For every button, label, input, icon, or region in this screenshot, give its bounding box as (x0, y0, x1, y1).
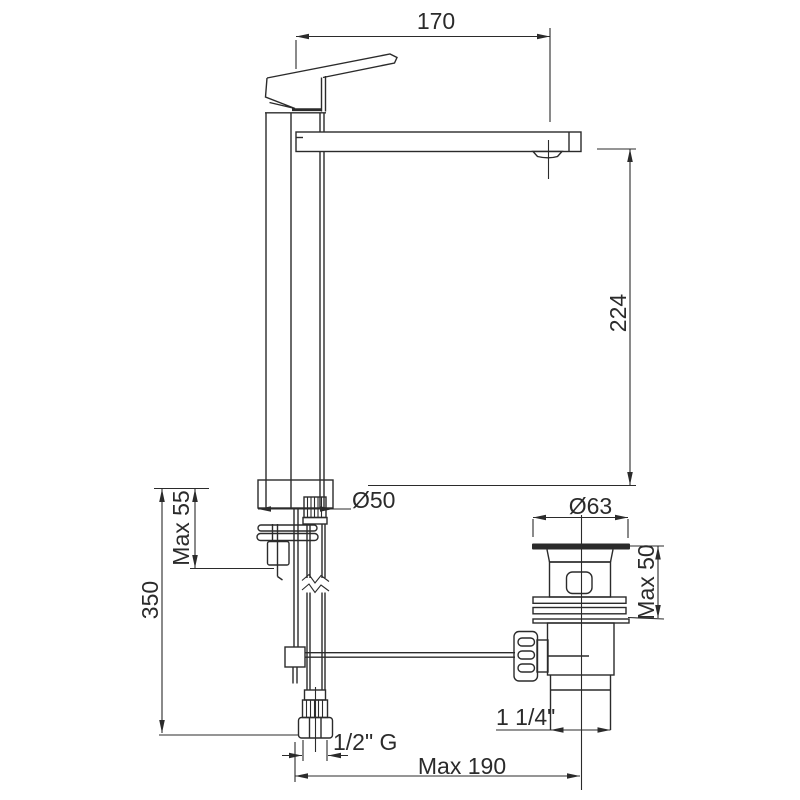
rod-boss (537, 640, 548, 672)
dim-label-waste-flange-diameter: Ø63 (569, 493, 612, 519)
rod-connector (285, 647, 305, 667)
break-symbol (302, 584, 329, 593)
aerator (533, 152, 562, 158)
dim-label-waste-size: 1 1/4" (496, 704, 555, 730)
faucet-handle (266, 54, 398, 112)
waste-body (550, 562, 611, 597)
horseshoe-washer-top (258, 525, 317, 531)
pop-up-rod (285, 508, 515, 684)
dim-spout-height: 224 (368, 149, 636, 486)
dim-label-spout-height: 224 (605, 294, 631, 333)
overflow-hole (567, 572, 593, 594)
dim-waste-size: 1 1/4" (496, 704, 611, 730)
technical-drawing-canvas: 170 224 Ø50 Ø63 Max 55 350 Max 50 (0, 0, 800, 800)
dim-label-waste-max-deck: Max 50 (633, 544, 659, 619)
drain-assembly (514, 515, 630, 790)
faucet-drawing: 170 224 Ø50 Ø63 Max 55 350 Max 50 (0, 0, 800, 800)
dim-waste-max-deck: Max 50 (628, 544, 664, 619)
dim-label-base-diameter: Ø50 (352, 487, 395, 513)
castellated-nut (514, 632, 538, 682)
dim-label-supply-thread: 1/2" G (333, 729, 397, 755)
pull-rod (273, 524, 283, 580)
dim-label-hose-length: 350 (137, 581, 163, 619)
mounting-nut (268, 542, 290, 566)
dim-label-faucet-max-deck: Max 55 (168, 490, 194, 565)
seal-washer-top (533, 597, 626, 603)
waste-flange (532, 544, 630, 550)
supply-hose (299, 524, 333, 752)
horseshoe-washer-bottom (257, 534, 318, 541)
waste-lower-body (548, 623, 615, 675)
dim-supply-thread: 1/2" G (282, 729, 397, 761)
waste-neck (547, 550, 613, 563)
dim-hose-length: 350 (137, 489, 299, 735)
faucet-body (265, 54, 581, 508)
dim-label-center-distance: Max 190 (418, 753, 506, 779)
dim-waste-flange-diameter: Ø63 (533, 493, 628, 538)
dim-base-diameter: Ø50 (258, 487, 395, 513)
seal-washer-bottom (533, 608, 626, 614)
dim-faucet-max-deck: Max 55 (154, 489, 274, 569)
faucet-column (265, 113, 326, 508)
faucet-spout (296, 132, 581, 179)
dim-label-spout-reach: 170 (417, 8, 455, 34)
tailpiece (551, 675, 611, 730)
